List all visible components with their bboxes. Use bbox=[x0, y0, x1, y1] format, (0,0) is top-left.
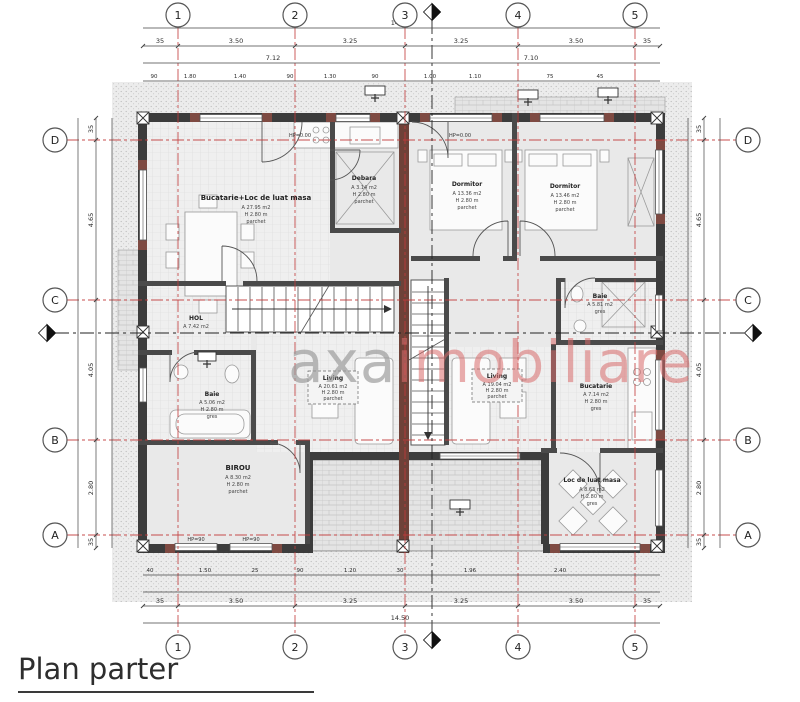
dim-top-small: 1.30 bbox=[324, 74, 337, 80]
dim-top-small: 1.10 bbox=[469, 74, 482, 80]
dim-bottom-small: 30 bbox=[397, 568, 404, 574]
axis-bottom-4: 4 bbox=[515, 641, 522, 654]
axis-top-5: 5 bbox=[632, 9, 639, 22]
dim-top-seg: 3.50 bbox=[569, 37, 583, 45]
dim-top-small: 90 bbox=[287, 74, 294, 80]
dim-top-seg: 3.25 bbox=[454, 37, 468, 45]
dim-left-seg: 2.80 bbox=[87, 481, 95, 495]
dim-bottom-small: 1.50 bbox=[199, 568, 212, 574]
svg-text:gres: gres bbox=[207, 414, 218, 420]
axis-right-c: C bbox=[744, 294, 752, 307]
floor-plan-page: 14.50 35 3.50 3.25 3.25 3.50 35 7.12 7.1… bbox=[0, 0, 800, 702]
stair-left bbox=[226, 284, 394, 334]
svg-text:Living: Living bbox=[487, 373, 507, 380]
axis-left-c: C bbox=[51, 294, 59, 307]
axis-top-2: 2 bbox=[292, 9, 299, 22]
svg-text:Debara: Debara bbox=[352, 175, 376, 182]
dim-top-seg: 35 bbox=[643, 37, 651, 45]
dim-bottom-small: 25 bbox=[252, 568, 259, 574]
dim-top-seg: 35 bbox=[156, 37, 164, 45]
svg-text:A 7.14 m2: A 7.14 m2 bbox=[583, 392, 609, 398]
dim-overall-bottom: 14.50 bbox=[391, 614, 410, 622]
room-label-birou: BIROU A 8.30 m2 H 2.80 m parchet bbox=[225, 464, 251, 495]
svg-text:Bucatarie+Loc de luat masa: Bucatarie+Loc de luat masa bbox=[201, 194, 312, 202]
axis-top-1: 1 bbox=[175, 9, 182, 22]
dim-bottom-small: 90 bbox=[297, 568, 304, 574]
svg-text:parchet: parchet bbox=[555, 207, 574, 213]
svg-text:H 2.80 m: H 2.80 m bbox=[585, 399, 608, 405]
svg-text:H 2.80 m: H 2.80 m bbox=[245, 212, 268, 218]
svg-text:BIROU: BIROU bbox=[226, 464, 251, 472]
dim-right-seg: 35 bbox=[695, 125, 703, 133]
svg-text:A 27.95 m2: A 27.95 m2 bbox=[242, 205, 271, 211]
hp-label: HP=0.00 bbox=[289, 133, 311, 139]
svg-text:A 13.46 m2: A 13.46 m2 bbox=[551, 193, 580, 199]
svg-text:H 2.80 m: H 2.80 m bbox=[201, 407, 224, 413]
dim-top-small: 1.00 bbox=[424, 74, 437, 80]
axis-left-d: D bbox=[51, 134, 59, 147]
svg-text:Dormitor: Dormitor bbox=[452, 181, 482, 188]
dim-bottom-seg: 3.25 bbox=[343, 597, 357, 605]
hp-label: HP=90 bbox=[242, 537, 259, 543]
dim-top-small: 75 bbox=[547, 74, 554, 80]
dim-top-small: 90 bbox=[151, 74, 158, 80]
axis-right-b: B bbox=[744, 434, 752, 447]
dim-right-seg: 2.80 bbox=[695, 481, 703, 495]
dim-right-seg: 4.65 bbox=[695, 213, 703, 227]
dim-bottom-small: 2.40 bbox=[554, 568, 567, 574]
dim-bottom-small: 1.96 bbox=[464, 568, 477, 574]
dim-top-seg: 3.25 bbox=[343, 37, 357, 45]
plan-title: Plan parter bbox=[18, 652, 314, 693]
dim-top-seg: 3.50 bbox=[229, 37, 243, 45]
dim-right-seg: 35 bbox=[695, 538, 703, 546]
svg-text:Baie: Baie bbox=[205, 391, 220, 398]
dim-bottom-seg: 35 bbox=[643, 597, 651, 605]
svg-text:H 2.80 m: H 2.80 m bbox=[581, 494, 604, 500]
bed-dormitor-2 bbox=[513, 150, 609, 230]
room-label-living-right: Living A 19.04 m2 H 2.80 m parchet bbox=[472, 369, 522, 402]
hp-label: HP=90 bbox=[187, 537, 204, 543]
svg-text:gres: gres bbox=[595, 309, 606, 315]
svg-text:Loc de luat masa: Loc de luat masa bbox=[563, 477, 620, 484]
dim-bottom-seg: 3.50 bbox=[229, 597, 243, 605]
dim-top-small: 1.40 bbox=[234, 74, 247, 80]
svg-text:parchet: parchet bbox=[457, 205, 476, 211]
svg-text:H 2.80 m: H 2.80 m bbox=[227, 482, 250, 488]
axis-top-3: 3 bbox=[402, 9, 409, 22]
svg-text:gres: gres bbox=[587, 501, 598, 507]
svg-text:gres: gres bbox=[591, 406, 602, 412]
svg-text:parchet: parchet bbox=[246, 219, 265, 225]
dim-bottom-seg: 3.25 bbox=[454, 597, 468, 605]
room-label-debara: Debara A 3.14 m2 H 2.80 m parchet bbox=[351, 175, 377, 205]
dim-left-seg: 4.65 bbox=[87, 213, 95, 227]
svg-text:parchet: parchet bbox=[354, 199, 373, 205]
dim-bottom-small: 1.20 bbox=[344, 568, 357, 574]
svg-text:Dormitor: Dormitor bbox=[550, 183, 580, 190]
stair-right bbox=[409, 280, 447, 445]
svg-text:A 5.06 m2: A 5.06 m2 bbox=[199, 400, 225, 406]
svg-text:A 3.14 m2: A 3.14 m2 bbox=[351, 185, 377, 191]
axis-right-d: D bbox=[744, 134, 752, 147]
axis-left-b: B bbox=[51, 434, 59, 447]
svg-text:A 5.81 m2: A 5.81 m2 bbox=[587, 302, 613, 308]
axis-left-a: A bbox=[51, 529, 59, 542]
svg-text:H 2.80 m: H 2.80 m bbox=[554, 200, 577, 206]
dim-left-seg: 35 bbox=[87, 125, 95, 133]
svg-text:A 8.30 m2: A 8.30 m2 bbox=[225, 475, 251, 481]
svg-text:H 2.80 m: H 2.80 m bbox=[353, 192, 376, 198]
dim-bottom-seg: 3.50 bbox=[569, 597, 583, 605]
svg-text:parchet: parchet bbox=[487, 394, 506, 400]
dim-top-mid: 7.12 bbox=[266, 54, 280, 62]
axis-right-a: A bbox=[744, 529, 752, 542]
svg-text:A 13.36 m2: A 13.36 m2 bbox=[453, 191, 482, 197]
svg-text:A 7.42 m2: A 7.42 m2 bbox=[183, 324, 209, 330]
dim-top-small: 90 bbox=[372, 74, 379, 80]
dim-bottom-small: 40 bbox=[147, 568, 154, 574]
svg-text:HOL: HOL bbox=[189, 315, 203, 322]
dim-top-small: 1.80 bbox=[184, 74, 197, 80]
kitchen-counter-right bbox=[628, 348, 656, 452]
dim-left-seg: 35 bbox=[87, 538, 95, 546]
dim-left-seg: 4.05 bbox=[87, 363, 95, 377]
dim-top-small: 45 bbox=[597, 74, 604, 80]
room-label-living-left: Living A 20.61 m2 H 2.80 m parchet bbox=[308, 371, 358, 404]
svg-text:A 8.63 m2: A 8.63 m2 bbox=[579, 487, 605, 493]
floor-plan-drawing: 14.50 35 3.50 3.25 3.25 3.50 35 7.12 7.1… bbox=[0, 0, 800, 702]
axis-bottom-5: 5 bbox=[632, 641, 639, 654]
hp-label: HP=0.00 bbox=[449, 133, 471, 139]
axis-bottom-3: 3 bbox=[402, 641, 409, 654]
terrace-paving bbox=[311, 460, 544, 551]
svg-text:Living: Living bbox=[323, 375, 343, 382]
svg-text:parchet: parchet bbox=[323, 396, 342, 402]
svg-text:Baie: Baie bbox=[593, 293, 608, 300]
svg-text:H 2.80 m: H 2.80 m bbox=[456, 198, 479, 204]
axis-top-4: 4 bbox=[515, 9, 522, 22]
dim-bottom-seg: 35 bbox=[156, 597, 164, 605]
dim-top-mid: 7.10 bbox=[524, 54, 538, 62]
svg-text:Bucatarie: Bucatarie bbox=[580, 383, 612, 390]
dim-right-seg: 4.05 bbox=[695, 363, 703, 377]
svg-text:parchet: parchet bbox=[228, 489, 247, 495]
